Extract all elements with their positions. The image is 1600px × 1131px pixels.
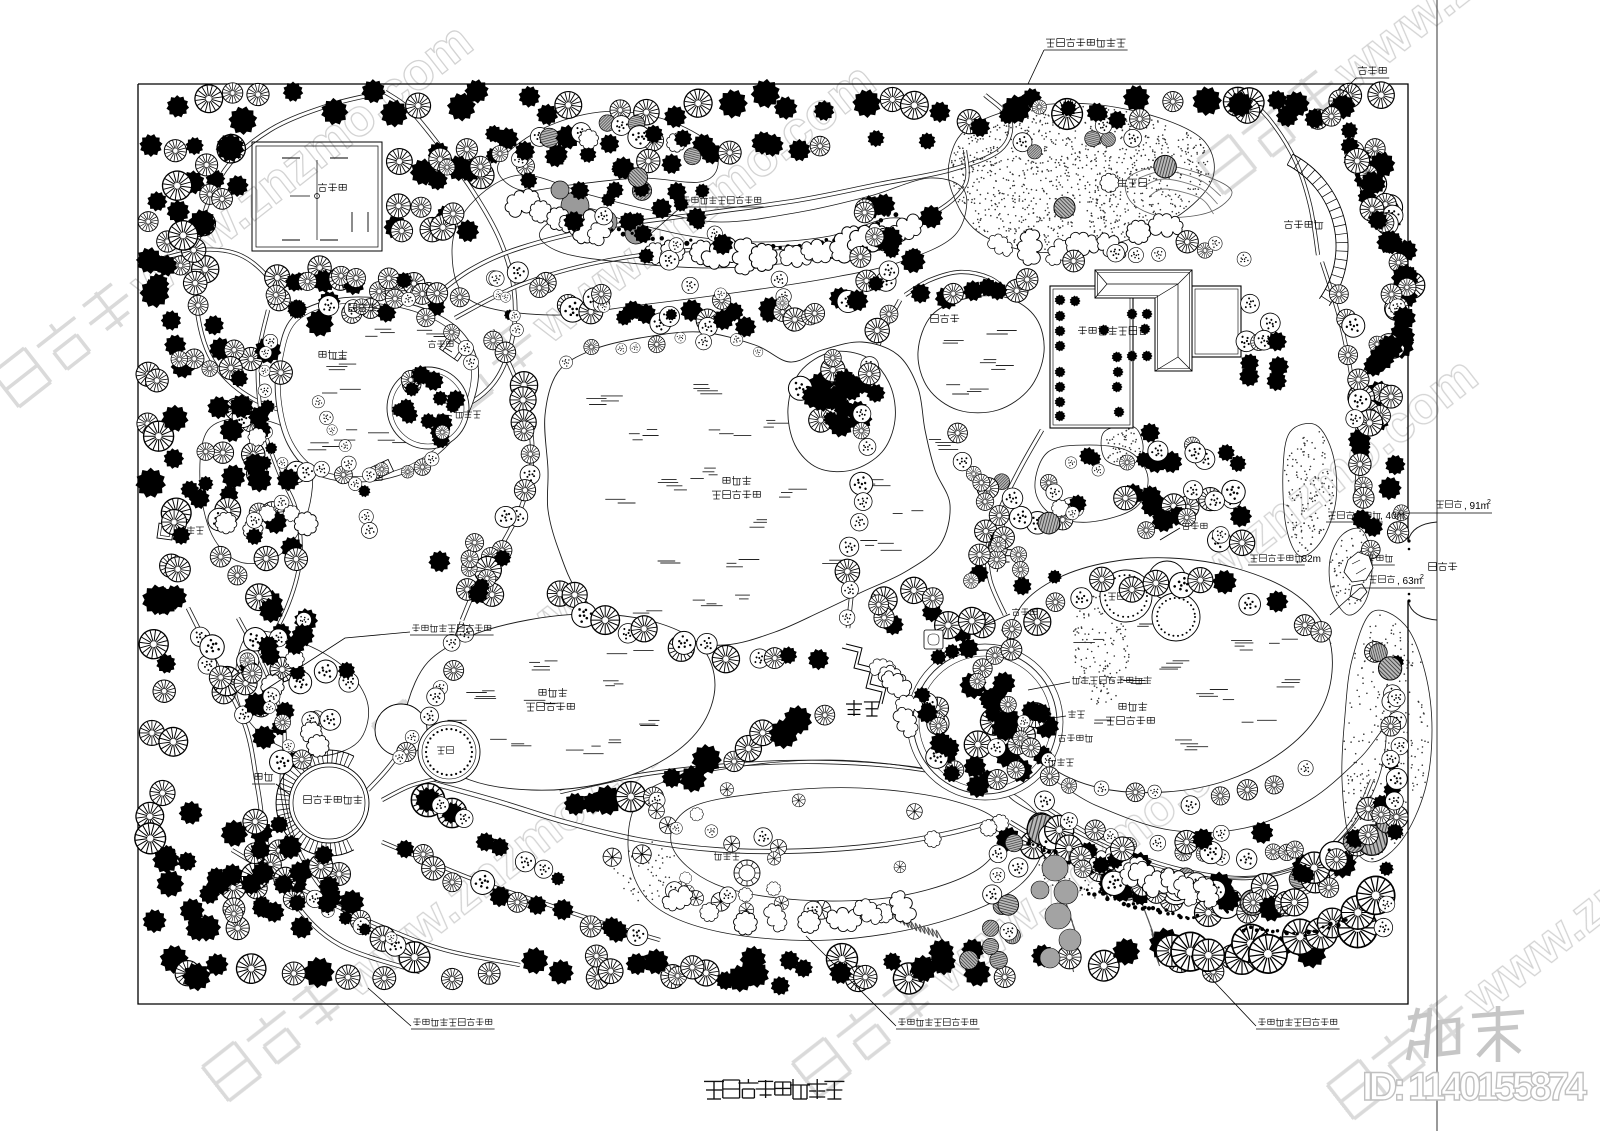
svg-text:2: 2 — [1487, 499, 1491, 506]
svg-text:, 82m: , 82m — [1296, 554, 1321, 565]
svg-text:, 91m: , 91m — [1464, 501, 1489, 512]
svg-text:ID: 1140155874: ID: 1140155874 — [1362, 1065, 1588, 1109]
svg-text:, 63m: , 63m — [1397, 576, 1422, 587]
svg-text:2: 2 — [1420, 574, 1424, 581]
svg-text:, 40m: , 40m — [1380, 511, 1405, 522]
